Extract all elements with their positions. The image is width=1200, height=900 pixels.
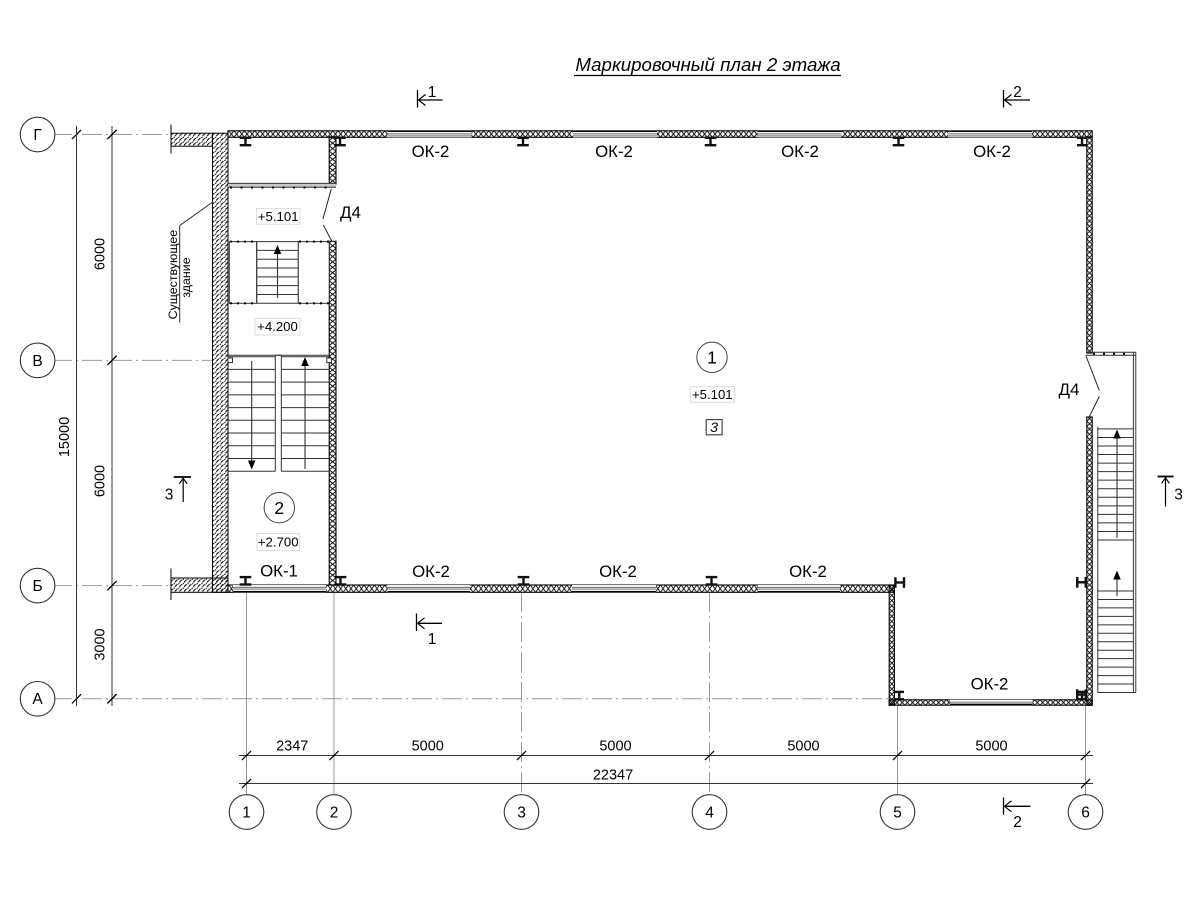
svg-text:ОК-2: ОК-2 xyxy=(973,142,1011,161)
svg-text:1: 1 xyxy=(707,348,717,368)
svg-text:Маркировочный план 2 этажа: Маркировочный план 2 этажа xyxy=(575,54,840,75)
svg-text:5000: 5000 xyxy=(787,739,819,755)
svg-text:ОК-2: ОК-2 xyxy=(412,142,450,161)
svg-text:Существующее: Существующее xyxy=(166,230,180,320)
svg-text:Г: Г xyxy=(33,127,42,144)
svg-text:2: 2 xyxy=(1013,814,1022,831)
svg-text:3000: 3000 xyxy=(93,628,109,660)
svg-text:1: 1 xyxy=(242,804,251,821)
svg-text:5: 5 xyxy=(893,804,902,821)
svg-text:+5.101: +5.101 xyxy=(692,387,733,402)
svg-text:5000: 5000 xyxy=(412,739,444,755)
svg-text:22347: 22347 xyxy=(593,768,633,784)
svg-text:ОК-2: ОК-2 xyxy=(599,562,637,581)
svg-text:3: 3 xyxy=(165,487,174,504)
svg-text:2: 2 xyxy=(330,804,339,821)
svg-text:Д4: Д4 xyxy=(340,203,361,222)
svg-text:5000: 5000 xyxy=(599,739,631,755)
svg-text:1: 1 xyxy=(428,84,437,101)
svg-text:ОК-2: ОК-2 xyxy=(412,562,450,581)
svg-text:А: А xyxy=(32,691,43,708)
svg-text:+2.700: +2.700 xyxy=(258,535,299,550)
svg-text:2: 2 xyxy=(274,498,284,518)
svg-text:3: 3 xyxy=(517,804,526,821)
svg-text:здание: здание xyxy=(179,257,193,297)
svg-text:6000: 6000 xyxy=(93,465,109,497)
svg-text:В: В xyxy=(32,353,42,370)
svg-text:6: 6 xyxy=(1081,804,1090,821)
svg-text:6000: 6000 xyxy=(93,238,109,270)
svg-text:15000: 15000 xyxy=(57,417,73,457)
svg-text:+5.101: +5.101 xyxy=(258,209,299,224)
svg-text:2: 2 xyxy=(1013,84,1022,101)
svg-text:ОК-2: ОК-2 xyxy=(781,142,819,161)
svg-text:2347: 2347 xyxy=(276,739,308,755)
svg-text:+4.200: +4.200 xyxy=(257,319,298,334)
svg-text:1: 1 xyxy=(428,631,437,648)
svg-text:3: 3 xyxy=(1174,487,1183,504)
svg-text:ОК-2: ОК-2 xyxy=(971,675,1009,694)
svg-text:Б: Б xyxy=(33,578,43,595)
svg-text:3: 3 xyxy=(710,419,718,435)
svg-text:ОК-2: ОК-2 xyxy=(595,142,633,161)
svg-text:ОК-2: ОК-2 xyxy=(789,562,827,581)
svg-text:ОК-1: ОК-1 xyxy=(260,562,298,581)
svg-text:5000: 5000 xyxy=(975,739,1007,755)
svg-text:Д4: Д4 xyxy=(1059,380,1080,399)
svg-text:4: 4 xyxy=(705,804,714,821)
